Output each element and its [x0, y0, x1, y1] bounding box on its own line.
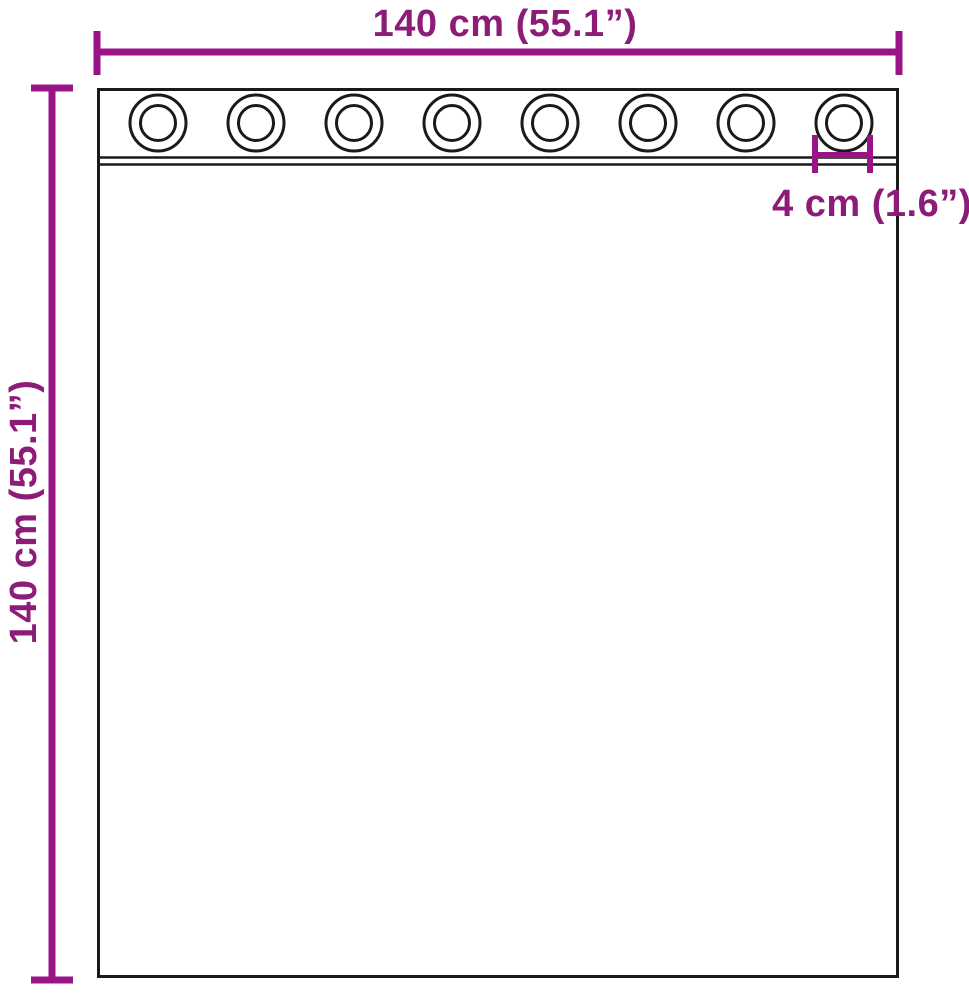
- grommet-dimension-right-tick: [867, 135, 873, 173]
- grommet-dimension-line: [815, 152, 870, 158]
- width-dimension-left-tick: [94, 31, 101, 75]
- height-dimension-label: 140 cm (55.1”): [5, 380, 43, 645]
- height-dimension-top-tick: [31, 85, 73, 92]
- width-dimension-line: [97, 49, 899, 56]
- diagram-canvas: 140 cm (55.1”) 140 cm (55.1”) 4 cm (1.6”…: [0, 0, 969, 994]
- height-dimension-bottom-tick: [31, 977, 73, 984]
- height-dimension-line: [49, 88, 56, 980]
- curtain-diagram: [0, 0, 969, 994]
- grommet-dimension-label: 4 cm (1.6”): [772, 185, 969, 223]
- grommet-dimension-left-tick: [812, 135, 818, 173]
- width-dimension-right-tick: [896, 31, 903, 75]
- width-dimension-label: 140 cm (55.1”): [373, 5, 638, 43]
